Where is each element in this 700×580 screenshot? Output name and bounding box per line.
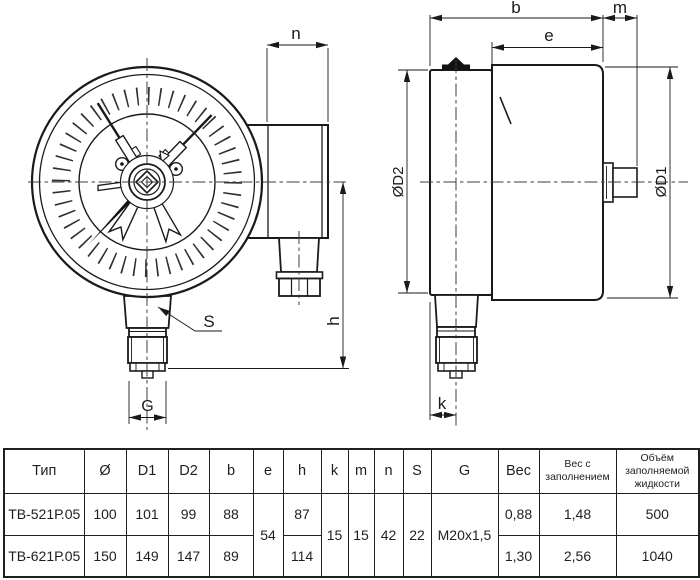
col-header-weight-filled: Вес с заполнением — [539, 449, 616, 493]
col-header-type: Тип — [4, 449, 84, 493]
cell-b: 88 — [209, 493, 253, 535]
dim-label-d2: ØD2 — [390, 167, 407, 198]
dimension-e — [492, 42, 603, 64]
cell-s-shared: 22 — [403, 493, 431, 577]
col-header-d1: D1 — [126, 449, 168, 493]
table-header-row: Тип Ø D1 D2 b e h k m n S G Вес Вес с за… — [4, 449, 699, 493]
cell-g-shared: M20x1,5 — [431, 493, 498, 577]
cell-h: 114 — [283, 535, 321, 577]
dim-label-g: G — [141, 398, 153, 415]
dim-label-s: S — [203, 312, 214, 331]
cell-weight: 0,88 — [498, 493, 539, 535]
front-view: n S G h — [28, 24, 349, 430]
cell-fill-volume: 1040 — [616, 535, 699, 577]
cell-d2: 99 — [168, 493, 209, 535]
cell-e-shared: 54 — [253, 493, 283, 577]
cell-type: ТВ-521Р.05 — [4, 493, 84, 535]
cell-b: 89 — [209, 535, 253, 577]
cell-diameter: 100 — [84, 493, 126, 535]
technical-drawing: n S G h — [0, 0, 700, 446]
side-view: b e m ØD2 ØD1 k — [390, 0, 688, 428]
cell-d2: 147 — [168, 535, 209, 577]
dimension-m — [603, 15, 637, 166]
cell-h: 87 — [283, 493, 321, 535]
col-header-g: G — [431, 449, 498, 493]
dim-label-e: e — [544, 26, 553, 45]
cell-fill-volume: 500 — [616, 493, 699, 535]
dim-label-b: b — [511, 0, 520, 17]
col-header-e: e — [253, 449, 283, 493]
cell-n-shared: 42 — [374, 493, 403, 577]
cell-d1: 101 — [126, 493, 168, 535]
col-header-m: m — [348, 449, 374, 493]
cell-k-shared: 15 — [321, 493, 348, 577]
table-row-tb521: ТВ-521Р.05 100 101 99 88 54 87 15 15 42 … — [4, 493, 699, 535]
cell-d1: 149 — [126, 535, 168, 577]
col-header-fill-volume: Объём заполняемой жидкости — [616, 449, 699, 493]
dim-label-k: k — [438, 394, 447, 413]
cell-type: ТВ-621Р.05 — [4, 535, 84, 577]
col-header-weight: Вес — [498, 449, 539, 493]
cell-weight-filled: 2,56 — [539, 535, 616, 577]
cell-weight-filled: 1,48 — [539, 493, 616, 535]
col-header-k: k — [321, 449, 348, 493]
col-header-n: n — [374, 449, 403, 493]
dim-label-m: m — [613, 0, 627, 17]
col-header-s: S — [403, 449, 431, 493]
dim-label-n: n — [291, 24, 300, 43]
col-header-d2: D2 — [168, 449, 209, 493]
dimensions-table: Тип Ø D1 D2 b e h k m n S G Вес Вес с за… — [3, 448, 700, 578]
dim-label-d1: ØD1 — [653, 167, 670, 198]
col-header-b: b — [209, 449, 253, 493]
dim-label-h: h — [324, 316, 343, 325]
pressure-gauge-drawing-sheet: n S G h — [0, 0, 700, 580]
col-header-h: h — [283, 449, 321, 493]
cell-diameter: 150 — [84, 535, 126, 577]
dimension-n — [267, 45, 328, 122]
col-header-diameter: Ø — [84, 449, 126, 493]
cell-weight: 1,30 — [498, 535, 539, 577]
cell-m-shared: 15 — [348, 493, 374, 577]
